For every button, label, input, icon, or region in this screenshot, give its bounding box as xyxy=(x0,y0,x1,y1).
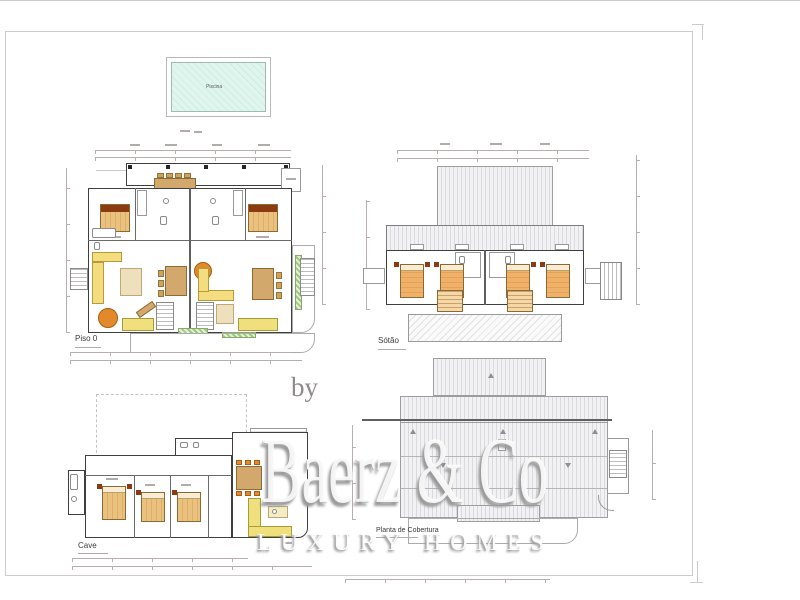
toilet xyxy=(71,496,77,502)
dimension-line xyxy=(366,200,370,310)
pillar xyxy=(242,165,246,169)
interior-wall xyxy=(88,240,189,241)
exterior-stairs xyxy=(609,450,627,478)
corner-mark xyxy=(697,561,698,583)
dimension-line xyxy=(397,150,589,154)
chair xyxy=(236,460,242,465)
bed xyxy=(400,264,424,298)
balcony xyxy=(363,268,385,284)
micro-dimension xyxy=(212,144,222,146)
bed-pillow xyxy=(507,265,529,271)
exterior-stairs xyxy=(70,268,88,290)
room-label-smudge xyxy=(145,484,155,486)
micro-text xyxy=(286,178,296,180)
nightstand xyxy=(540,262,545,267)
chair xyxy=(158,280,164,287)
dimension-line xyxy=(72,566,312,570)
sink xyxy=(210,198,216,204)
bed-pillow xyxy=(178,493,200,499)
pillar xyxy=(128,165,132,169)
stairs xyxy=(196,302,214,330)
slope-arrow xyxy=(592,429,598,434)
bed-pillow xyxy=(142,493,164,499)
dormer-roof xyxy=(437,166,553,227)
dimension-line xyxy=(66,168,70,333)
bed xyxy=(248,204,278,232)
bed-pillow xyxy=(101,205,129,212)
micro-dimension xyxy=(194,131,202,133)
bed-pillow xyxy=(441,265,463,271)
bed-pillow xyxy=(103,487,125,493)
room-label-smudge xyxy=(256,236,269,238)
interior-wall xyxy=(191,240,292,241)
dimension-line xyxy=(652,430,656,500)
toilet xyxy=(459,256,465,264)
sofa xyxy=(198,268,209,292)
micro-dimension xyxy=(130,144,140,146)
wardrobe xyxy=(137,190,147,216)
bed xyxy=(546,264,570,298)
chair xyxy=(276,292,282,299)
nightstand xyxy=(531,262,536,267)
deck-edge-line xyxy=(96,170,126,171)
dimension-line xyxy=(397,158,589,162)
chair xyxy=(158,290,164,297)
chair xyxy=(245,491,251,496)
scale-note-smudge xyxy=(78,553,108,554)
toilet xyxy=(212,216,219,225)
rug xyxy=(120,268,142,296)
chair xyxy=(245,460,251,465)
chair xyxy=(158,270,164,277)
bed xyxy=(177,492,201,522)
party-wall xyxy=(484,250,486,305)
kitchen-counter xyxy=(238,318,278,331)
interior-wall xyxy=(245,188,246,240)
wardrobe xyxy=(233,190,243,216)
plan-label-sotao: Sótão xyxy=(378,336,399,345)
bathtub xyxy=(92,228,116,238)
sofa xyxy=(92,262,104,304)
bed xyxy=(102,486,126,520)
dining-table xyxy=(236,466,262,490)
dining-table xyxy=(252,268,274,300)
corner-mark xyxy=(690,582,703,583)
architectural-drawing-sheet: Piscina xyxy=(0,0,800,600)
watermark-brand: Baerz & Co xyxy=(261,424,548,518)
dimension-line xyxy=(636,155,640,305)
dimension-line xyxy=(345,579,550,583)
round-table xyxy=(98,308,118,328)
terrace xyxy=(408,314,562,342)
corner-mark xyxy=(702,24,703,40)
dimension-line xyxy=(70,360,302,364)
room-label-smudge xyxy=(181,484,191,486)
interior-wall xyxy=(135,188,136,240)
stairs xyxy=(507,290,533,312)
stairs xyxy=(156,302,174,330)
dimension-line xyxy=(95,157,291,161)
chair xyxy=(276,282,282,289)
dimension-line xyxy=(72,558,248,562)
bed xyxy=(141,492,165,522)
toilet xyxy=(505,256,511,264)
pillar xyxy=(166,165,170,169)
plan-label-cave: Cave xyxy=(78,541,97,550)
bed-pillow xyxy=(249,205,277,212)
room-label-smudge xyxy=(106,478,118,480)
floor-plan-piso0: Piso 0 xyxy=(60,140,335,365)
bed-pillow xyxy=(547,265,569,271)
micro-dimension xyxy=(258,144,270,146)
toilet xyxy=(193,442,199,448)
dimension-line xyxy=(95,150,291,154)
sink xyxy=(163,198,169,204)
exterior-stairs xyxy=(300,258,315,296)
interior-wall xyxy=(134,475,135,538)
scale-note-smudge xyxy=(75,347,101,348)
nightstand xyxy=(394,262,399,267)
page-top-line xyxy=(0,0,800,1)
toilet xyxy=(94,242,100,250)
plan-label-piso0: Piso 0 xyxy=(75,334,97,343)
micro-dimension xyxy=(440,143,450,145)
micro-dimension xyxy=(490,143,502,145)
chair xyxy=(276,272,282,279)
slope-arrow xyxy=(565,463,571,468)
slope-arrow xyxy=(488,373,494,378)
corridor-wall xyxy=(85,475,232,476)
bathtub xyxy=(70,474,78,490)
dining-table xyxy=(165,266,187,296)
rug xyxy=(216,304,234,324)
deck xyxy=(126,163,290,186)
dimension-line xyxy=(322,165,326,305)
pillar xyxy=(204,165,208,169)
pool-area: Piscina xyxy=(160,50,285,150)
toilet xyxy=(160,216,167,225)
nightstand xyxy=(434,262,439,267)
micro-dimension xyxy=(165,144,177,146)
watermark-by: by xyxy=(291,372,318,403)
chair xyxy=(254,460,260,465)
micro-dimension xyxy=(540,143,550,145)
bed-pillow xyxy=(401,265,423,271)
pool-label: Piscina xyxy=(206,84,222,90)
party-wall xyxy=(189,188,191,333)
floor-plan-sotao: Sótão xyxy=(360,140,660,355)
chair xyxy=(254,491,260,496)
interior-wall xyxy=(208,475,209,538)
interior-wall xyxy=(170,475,171,538)
micro-dimension xyxy=(180,130,190,132)
exterior-stairs xyxy=(600,262,622,300)
kitchen-counter xyxy=(122,318,154,331)
nightstand xyxy=(425,262,430,267)
dimension-line xyxy=(70,352,290,356)
sink xyxy=(180,442,188,448)
chair xyxy=(236,491,242,496)
stairs xyxy=(437,290,463,312)
nightstand xyxy=(127,484,132,489)
scale-note-smudge xyxy=(378,349,406,350)
watermark-tagline: LUXURY HOMES xyxy=(257,530,553,557)
patio-outline xyxy=(130,333,315,353)
sofa xyxy=(92,252,122,262)
